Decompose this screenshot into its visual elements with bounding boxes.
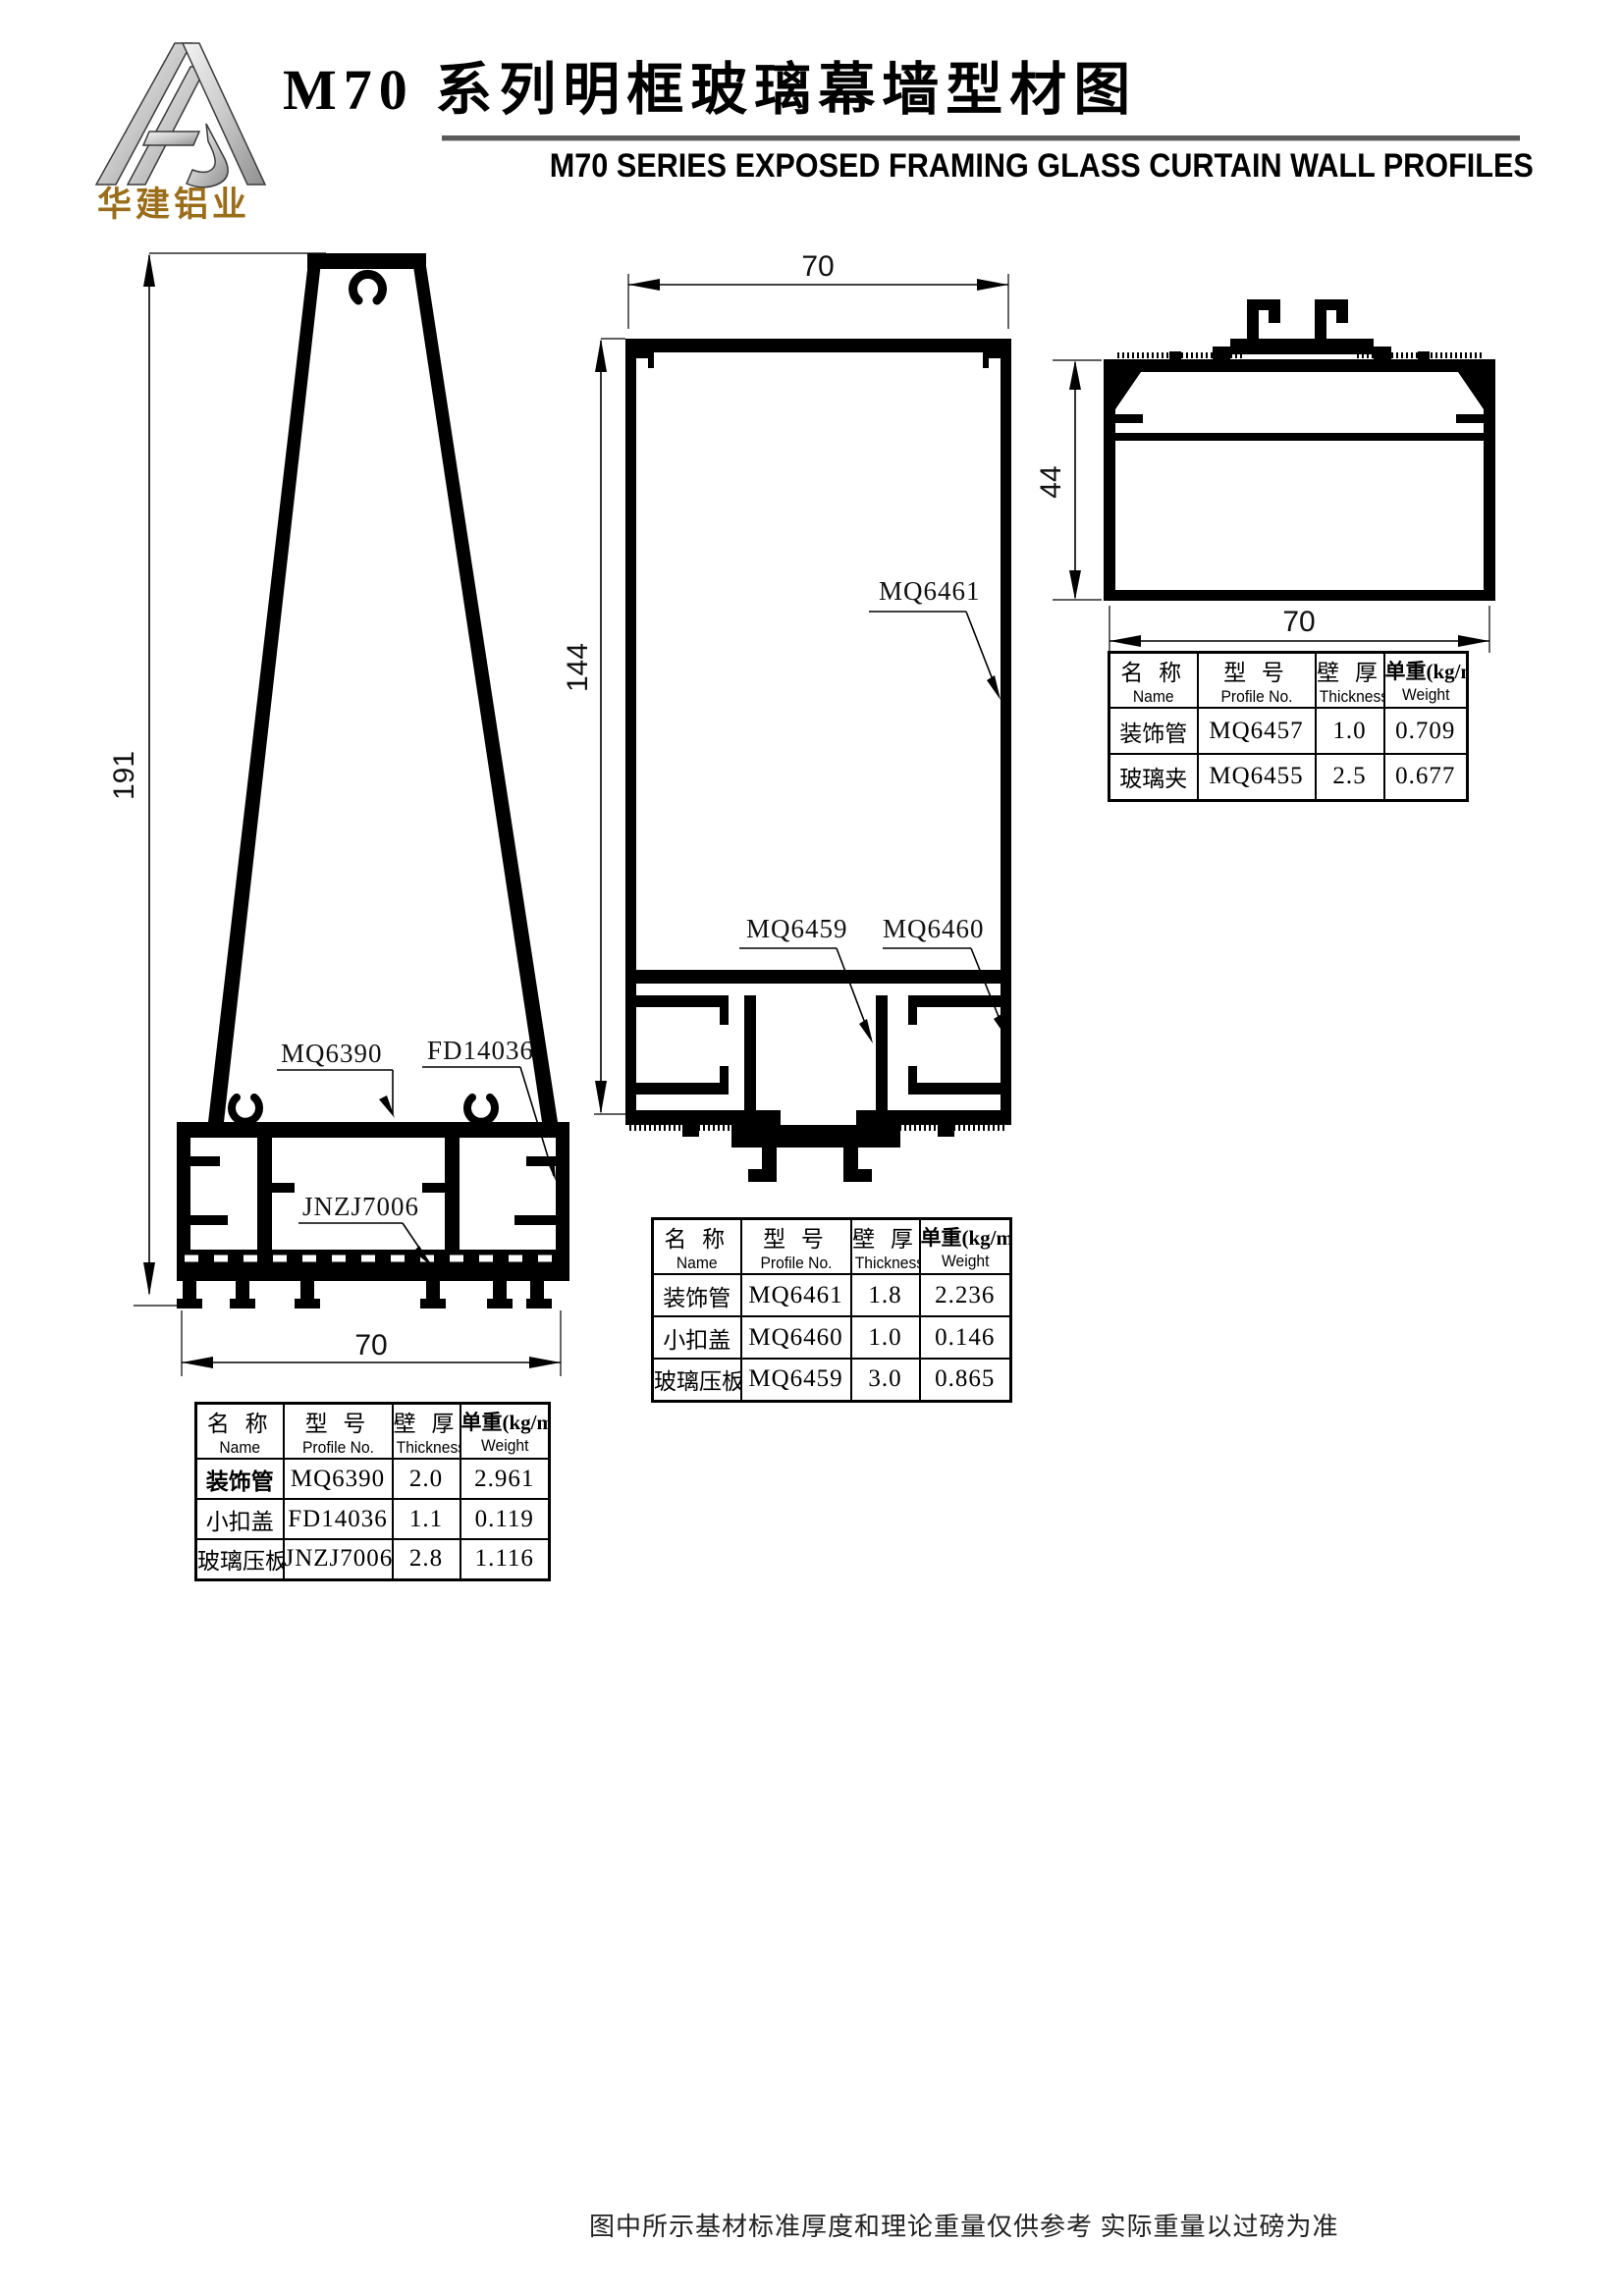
- dimension-height-44: 44: [1035, 360, 1102, 600]
- logo-text: 华建铝业: [97, 186, 250, 224]
- dim-44: 44: [1035, 465, 1067, 498]
- dim-70-bottom: 70: [354, 1329, 387, 1362]
- table-row: 玻璃压板 MQ6459 3.0 0.865: [653, 1359, 1011, 1401]
- title-divider: [442, 135, 1520, 141]
- page-title: M70 系列明框玻璃幕墙型材图: [283, 43, 1137, 126]
- table-header-row: 名 称Name 型 号Profile No. 壁 厚Thickness 单重(k…: [653, 1219, 1011, 1275]
- table-row: 装饰管 MQ6461 1.8 2.236: [653, 1274, 1011, 1316]
- label-fd14036-text: FD14036: [427, 1036, 534, 1065]
- a-frame-body: [208, 253, 558, 1122]
- dim-70-side: 70: [1282, 606, 1315, 638]
- top-clip-bracket: [1213, 299, 1391, 359]
- page-subtitle: M70 SERIES EXPOSED FRAMING GLASS CURTAIN…: [550, 147, 1520, 186]
- dim-191: 191: [108, 751, 140, 800]
- dim-144: 144: [562, 643, 594, 692]
- label-mq6461-text: MQ6461: [879, 576, 981, 606]
- label-mq6461: MQ6461: [869, 576, 1001, 700]
- table-row: 装饰管 MQ6457 1.0 0.709: [1109, 708, 1468, 754]
- side-profile-table: 名 称Name 型 号Profile No. 壁 厚Thickness 单重(k…: [1108, 651, 1469, 802]
- label-mq6390: MQ6390: [277, 1039, 395, 1118]
- bottom-feet: [177, 1281, 552, 1308]
- table-header-row: 名 称Name 型 号Profile No. 壁 厚Thickness 单重(k…: [196, 1404, 550, 1460]
- mullion-profile-drawing: 191: [98, 226, 609, 1414]
- mullion-profile-table: 名 称Name 型 号Profile No. 壁 厚Thickness 单重(k…: [194, 1402, 551, 1581]
- footer-note: 图中所示基材标准厚度和理论重量仅供参考 实际重量以过磅为准: [589, 2211, 1345, 2240]
- label-mq6390-text: MQ6390: [281, 1039, 383, 1068]
- tube-body: [625, 339, 1011, 984]
- label-mq6459-text: MQ6459: [746, 914, 848, 943]
- side-body: [1104, 351, 1495, 601]
- side-profile-drawing: 44 70: [1031, 260, 1522, 663]
- transom-profile-table: 名 称Name 型 号Profile No. 壁 厚Thickness 单重(k…: [651, 1217, 1012, 1403]
- table-row: 玻璃夹 MQ6455 2.5 0.677: [1109, 754, 1468, 800]
- label-jnzj7006-text: JNZJ7006: [302, 1192, 419, 1221]
- huajian-logo-icon: 华建铝业: [81, 37, 267, 222]
- dimension-width-70: 70: [628, 250, 1008, 329]
- glass-clamp-assembly: [625, 984, 1011, 1182]
- table-row: 小扣盖 FD14036 1.1 0.119: [196, 1499, 550, 1539]
- transom-profile-drawing: 70 144: [584, 231, 1051, 1222]
- table-row: 装饰管 MQ6390 2.0 2.961: [196, 1459, 550, 1499]
- top-clip-slot: [353, 274, 383, 300]
- label-mq6460-text: MQ6460: [883, 914, 985, 943]
- drawing-sheet: 华建铝业 M70 系列明框玻璃幕墙型材图 M70 SERIES EXPOSED …: [0, 0, 1623, 2296]
- dimension-width-70: 70: [1109, 606, 1489, 653]
- dim-70-top: 70: [801, 250, 834, 283]
- table-row: 玻璃压板 JNZJ7006 2.8 1.116: [196, 1539, 550, 1579]
- table-row: 小扣盖 MQ6460 1.0 0.146: [653, 1316, 1011, 1359]
- table-header-row: 名 称Name 型 号Profile No. 壁 厚Thickness 单重(k…: [1109, 653, 1468, 709]
- dimension-width-70: 70: [182, 1310, 561, 1376]
